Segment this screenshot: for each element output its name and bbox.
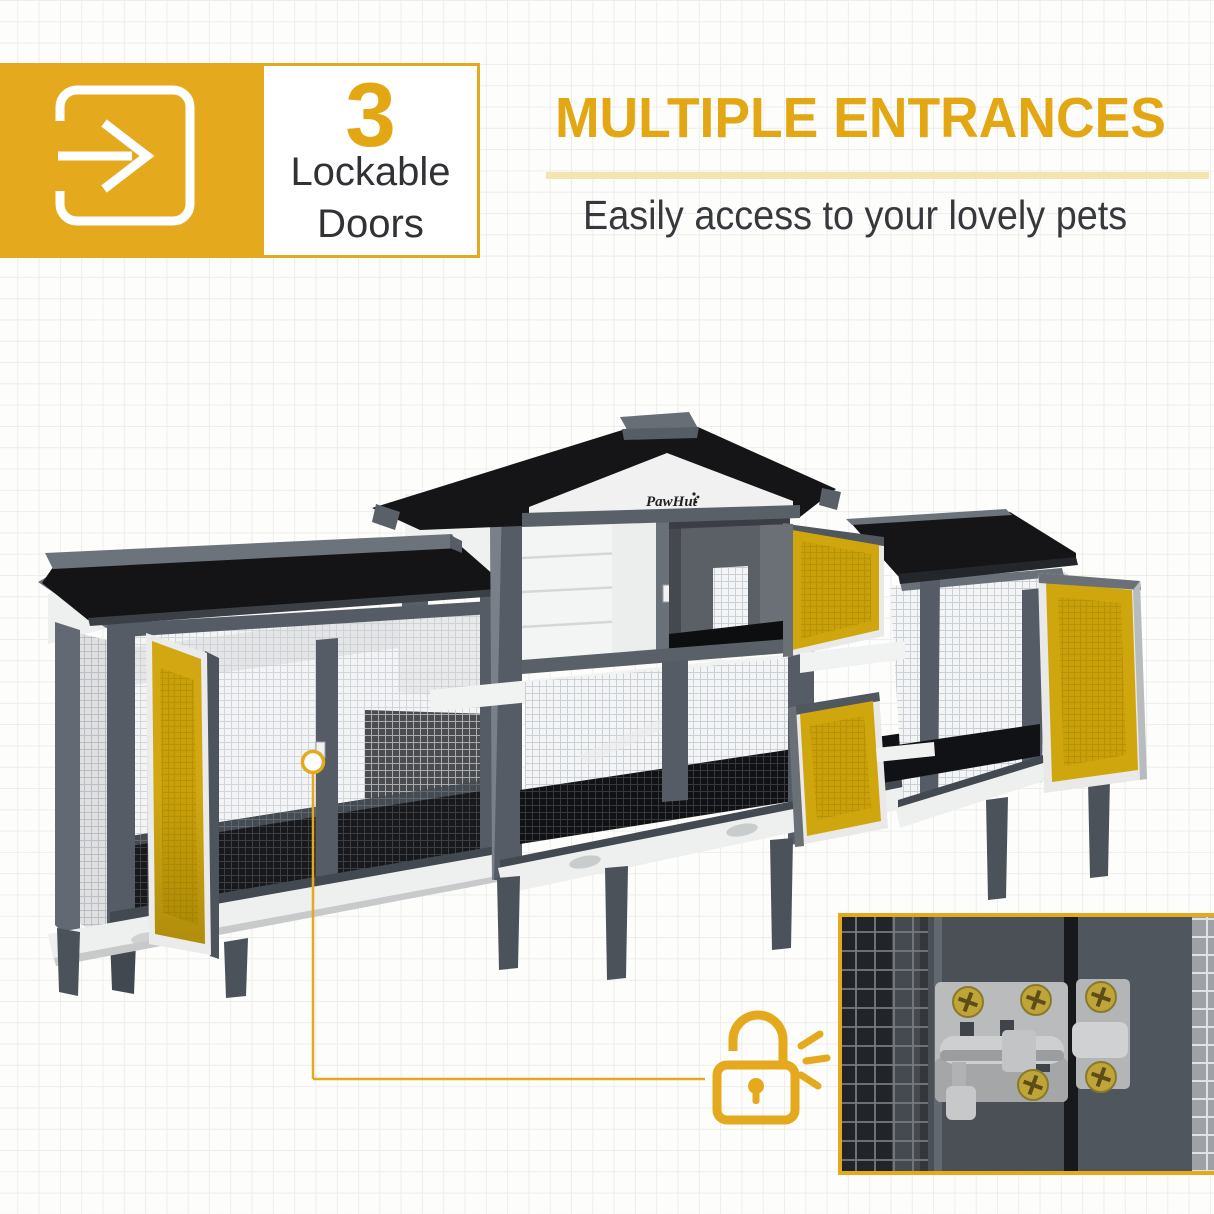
svg-text:PawHut: PawHut (646, 494, 698, 510)
